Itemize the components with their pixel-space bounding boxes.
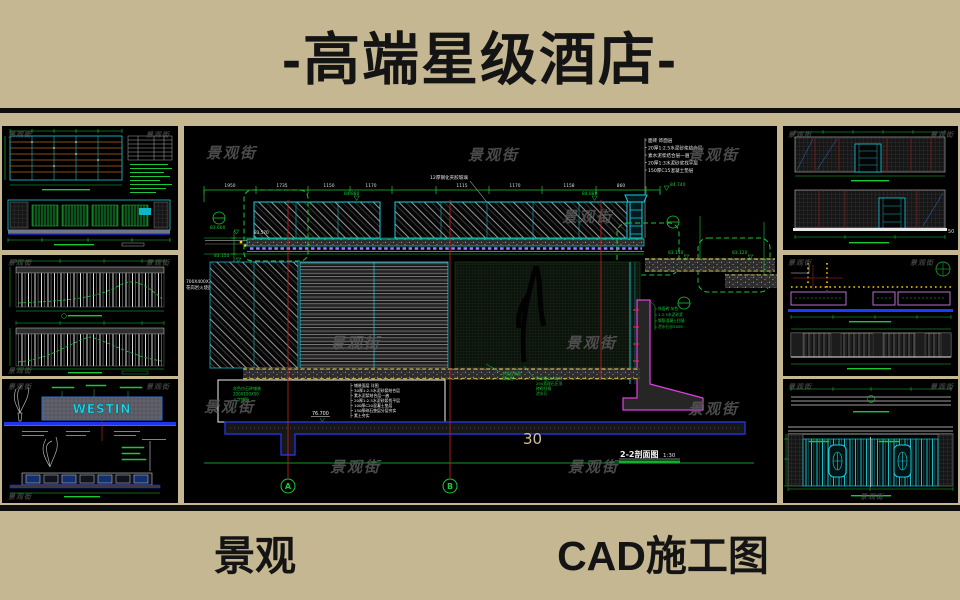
roof-layer-note: 素水泥浆结合层一遍: [648, 152, 690, 159]
elevation-label: 84.740: [670, 182, 686, 188]
dim-label: 1170: [509, 183, 520, 189]
footer-category-label: 景观: [160, 522, 350, 582]
dim-label: 1158: [563, 183, 574, 189]
dim-label: 1150: [323, 183, 334, 189]
floor-layer-note: 素土夯实: [354, 413, 370, 418]
thumb-wall-elevations-drawing[interactable]: 50: [783, 126, 958, 250]
elevation-label: 84.880: [582, 191, 598, 197]
bottom-divider: [0, 505, 960, 511]
elevation-label: 83.150: [668, 250, 684, 256]
fence-elevations-svg: [2, 255, 178, 376]
main-section-svg: 面砖 饰面层 20厚1:2.5水泥砂浆结合层 素水泥浆结合层一遍 20厚1:3水…: [184, 126, 777, 503]
thumb-fence-elevations-drawing[interactable]: [2, 255, 178, 376]
gate-elevation-svg: [783, 379, 958, 503]
elevation-label: 84.880: [344, 191, 360, 197]
roof-layer-note: 面砖 饰面层: [648, 137, 673, 144]
roof-layer-note: 20厚1:3水泥砂浆找平层: [648, 160, 698, 167]
wall-note: 泄水孔: [536, 391, 548, 396]
grid-bubble-b: B: [447, 482, 453, 491]
thumb-gate-elevation-drawing[interactable]: [783, 379, 958, 503]
roof-layer-note: 20厚1:2.5水泥砂浆结合层: [648, 145, 703, 152]
roof-layer-note: 150厚C15混凝土垫层: [648, 167, 694, 174]
dim-label: 1170: [365, 183, 376, 189]
thumb-main-section-drawing[interactable]: 面砖 饰面层 20厚1:2.5水泥砂浆结合层 素水泥浆结合层一遍 20厚1:3水…: [184, 126, 777, 503]
paving-note: 200X100X50: [233, 392, 259, 397]
dim-label: 1950: [224, 183, 235, 189]
plan-section-svg: [783, 255, 958, 376]
retain-note: 饰面砖 灰色: [658, 306, 678, 311]
retain-note: 1:2.5水泥砂浆: [658, 312, 683, 317]
glass-note: 12厚钢化夹胶玻璃: [430, 174, 468, 181]
elevation-label: 83.570: [254, 230, 269, 235]
paving-note: 人字铺贴: [233, 396, 249, 402]
elevation-label: 83.600: [210, 225, 226, 231]
view-title: 2-2剖面图: [620, 449, 658, 459]
poster-page: -高端星级酒店-: [0, 0, 960, 600]
retain-note: 钢筋混凝土挡墙: [658, 318, 685, 323]
elevation-label: 76.700: [312, 411, 329, 417]
edge-number: 50: [948, 229, 954, 235]
dim-label: 860: [617, 183, 626, 189]
westin-sign-svg: WESTIN: [2, 379, 178, 503]
wall-elevations-svg: 50: [783, 126, 958, 250]
page-title: -高端星级酒店-: [0, 14, 960, 96]
footer-type-label: CAD施工图: [548, 522, 778, 582]
thumb-westin-sign-drawing[interactable]: WESTIN: [2, 379, 178, 503]
dim-label: 1735: [276, 183, 287, 189]
elevation-label: 83.120: [732, 250, 748, 256]
retain-note: 泄水孔@2000: [658, 324, 683, 329]
dim-label: 1115: [456, 183, 467, 189]
wall-note: 深灰色: [502, 376, 514, 381]
view-scale: 1:30: [663, 453, 676, 459]
stone-note: 花岗岩火烧面: [186, 284, 213, 291]
plan-elevation-svg: [2, 126, 178, 250]
top-divider: [0, 108, 960, 113]
thumb-plan-section-drawing[interactable]: [783, 255, 958, 376]
paving-note: 灰色仿石砖铺装: [233, 385, 261, 391]
westin-sign-text: WESTIN: [73, 402, 132, 416]
sheet-number: 30: [523, 430, 542, 448]
thumb-plan-elevation-drawing[interactable]: [2, 126, 178, 250]
elevation-label: 83.150: [214, 253, 230, 259]
grid-bubble-a: A: [285, 482, 292, 491]
